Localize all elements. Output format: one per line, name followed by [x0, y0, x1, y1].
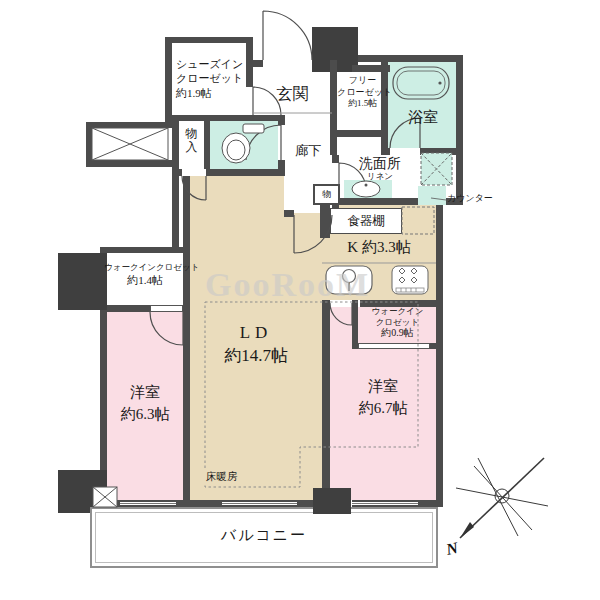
ac-sleeve-hatch — [93, 487, 117, 507]
entrance-door-arc — [263, 11, 312, 60]
fridge-space — [402, 207, 434, 234]
stove-icon — [392, 266, 428, 294]
compass-north-label: N — [444, 539, 461, 559]
bathroom-label: 浴室 — [388, 108, 458, 128]
linen-label: リネン — [352, 171, 408, 182]
balcony-label: バルコニー — [90, 526, 438, 546]
counter-pointer-line — [431, 198, 446, 200]
living-dining-label: LD 約14.7帖 — [190, 322, 322, 368]
north-arrowhead — [460, 522, 474, 538]
wic-left-label: ウォークインクロゼット 約1.4帖 — [104, 262, 186, 287]
bathtub-icon — [393, 67, 449, 99]
porch-hatch — [92, 128, 168, 160]
free-closet-label: フリー クローゼット 約1.5帖 — [337, 75, 388, 110]
watermark: GooRooM — [205, 266, 370, 304]
counter-label: カウンター — [447, 193, 499, 205]
washbasin-icon — [352, 181, 380, 197]
hallway-label: 廊下 — [284, 143, 332, 160]
toilet-icon — [222, 124, 264, 163]
entrance-label: 玄関 — [253, 84, 332, 105]
bedroom-right-door-arc — [330, 303, 352, 325]
kitchen-label: K 約3.3帖 — [322, 238, 436, 258]
floor-heating-label: 床暖房 — [204, 470, 240, 484]
hall-storage-label: 物 入 — [179, 127, 204, 155]
shoes-in-closet-label: シューズイン クローゼット 約1.9帖 — [176, 57, 246, 100]
bedroom-left-door-arc — [150, 312, 183, 345]
compass-icon: N — [444, 446, 564, 566]
bedroom-right-label: 洋室 約6.7帖 — [330, 376, 436, 420]
washer-space-icon — [421, 153, 452, 185]
bedroom-left-label: 洋室 約6.3帖 — [107, 382, 183, 426]
floor-plan: 物 食器棚 — [0, 0, 600, 600]
wic-right-label: ウォークイン クロゼット 約0.9帖 — [358, 306, 437, 340]
storage-door-arc — [182, 176, 206, 200]
